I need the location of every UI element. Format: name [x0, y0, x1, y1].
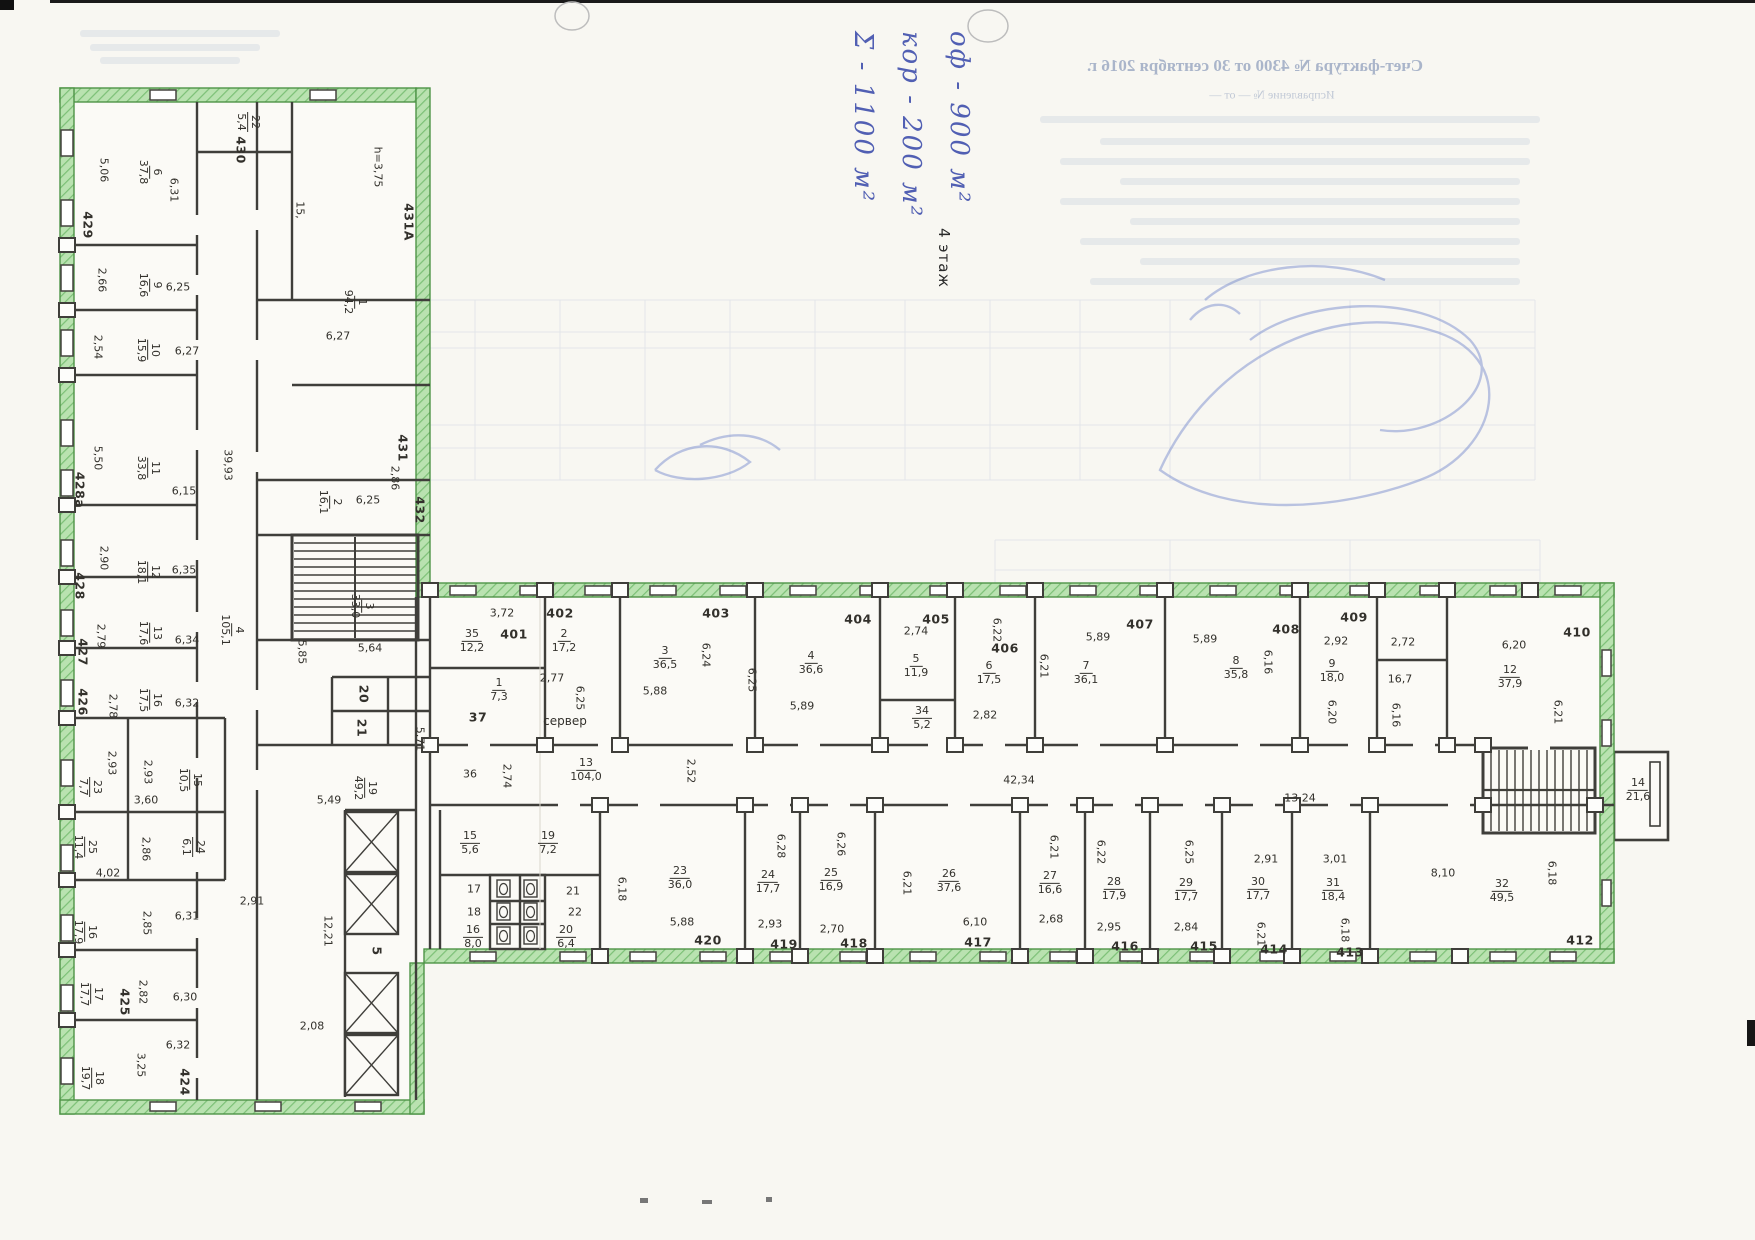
dimension-label: 6,25 [574, 686, 587, 711]
dimension-label: 6,21 [1255, 922, 1268, 947]
room-area-value: 17,7 [1246, 890, 1271, 903]
room-area-value: 5,4 [235, 113, 248, 131]
dimension-label: 6,27 [326, 330, 351, 343]
room-number-label: 429 [81, 211, 96, 239]
dimension-label: 6,16 [1262, 650, 1275, 675]
room-index-number: 9 [150, 279, 164, 292]
room-area-fraction: 4105,1 [219, 614, 245, 646]
room-index-number: 19 [538, 830, 558, 844]
room-index-number: 23 [670, 865, 690, 879]
room-index-number: 24 [758, 869, 778, 883]
room-area-fraction: 2637,6 [937, 868, 962, 894]
dimension-label: 2,91 [240, 895, 265, 908]
room-number-label: 5 [370, 946, 385, 955]
dimension-label: 3,60 [134, 794, 159, 807]
dimension-label: 6,18 [1546, 861, 1559, 886]
bleedthrough-invoice-title: Счет-фактура № 4300 от 30 сентября 2016 … [1087, 56, 1423, 76]
room-area-fraction: 1949,2 [352, 776, 378, 801]
room-number-label: 420 [694, 933, 722, 948]
dimension-label: 5,49 [317, 794, 342, 807]
room-area-fraction: 206,4 [556, 924, 576, 950]
dimension-label: 2,95 [1097, 921, 1122, 934]
room-number-label: 427 [76, 638, 91, 666]
room-area-fraction: 2417,7 [756, 869, 781, 895]
room-index-number: 2 [558, 628, 571, 642]
room-number-label: 406 [991, 641, 1019, 656]
bleedthrough-text-bar [100, 57, 240, 64]
dimension-label: 6,18 [1339, 918, 1352, 943]
dimension-label: 5,89 [790, 700, 815, 713]
room-area-fraction: 1133,8 [135, 456, 161, 481]
bleedthrough-text-bar [1080, 238, 1520, 245]
room-area-value: 19,7 [79, 1066, 92, 1091]
handwritten-line: оф - 900 м² [935, 31, 983, 331]
dimension-label: 5,06 [98, 158, 111, 183]
room-area-fraction: 617,5 [977, 660, 1002, 686]
dimension-label: 2,52 [685, 759, 698, 784]
dimension-label: 17 [467, 883, 481, 896]
dimension-label: 2,82 [973, 709, 998, 722]
room-area-fraction: 1317,6 [137, 621, 163, 646]
room-area-fraction: 168,0 [463, 924, 483, 950]
room-area-fraction: 1819,7 [79, 1066, 105, 1091]
dimension-label: 22 [568, 906, 582, 919]
room-index-number: 18 [92, 1068, 106, 1088]
dimension-label: 6,21 [1038, 654, 1051, 679]
room-area-value: 17,5 [977, 674, 1002, 687]
dimension-label: 2,74 [501, 764, 514, 789]
dimension-label: 2,78 [107, 694, 120, 719]
bleedthrough-text-bar [1060, 158, 1530, 165]
room-area-fraction: 237,7 [77, 777, 103, 797]
room-area-fraction: 2336,0 [668, 865, 693, 891]
bleedthrough-text-bar [1040, 116, 1540, 123]
room-area-value: 15,9 [135, 338, 148, 363]
dimension-label: 2,68 [1039, 913, 1064, 926]
room-number-label: 409 [1340, 610, 1368, 625]
dimension-label: 2,85 [141, 911, 154, 936]
room-area-fraction: 1617,5 [137, 688, 163, 713]
room-index-number: 16 [85, 922, 99, 942]
room-area-fraction: 17,3 [490, 677, 508, 703]
dimension-label: 6,10 [963, 916, 988, 929]
scanned-floor-plan-page: Счет-фактура № 4300 от 30 сентября 2016 … [0, 0, 1755, 1240]
room-area-value: 49,2 [352, 776, 365, 801]
room-index-number: 29 [1176, 877, 1196, 891]
room-area-fraction: 197,2 [538, 830, 558, 856]
handwritten-line: Σ - 1100 м² [839, 31, 887, 331]
room-area-value: 18,1 [135, 560, 148, 585]
room-index-number: 5 [910, 653, 923, 667]
room-area-fraction: 2917,7 [1174, 877, 1199, 903]
dimension-label: 6,20 [1326, 700, 1339, 725]
room-number-label: 432 [413, 496, 428, 524]
bleedthrough-text-bar [90, 44, 260, 51]
room-number-label: 416 [1111, 939, 1139, 954]
room-index-number: 25 [85, 837, 99, 857]
dimension-label: 6,35 [172, 564, 197, 577]
room-area-fraction: 1237,9 [1498, 664, 1523, 690]
dimension-label: 8,10 [1431, 867, 1456, 880]
room-index-number: 15 [460, 830, 480, 844]
room-area-fraction: 216,1 [317, 490, 343, 515]
room-area-fraction: 511,9 [904, 653, 929, 679]
room-index-number: 30 [1248, 876, 1268, 890]
room-area-value: 18,0 [1320, 672, 1345, 685]
dimension-label: 6,34 [175, 634, 200, 647]
room-index-number: 15 [190, 770, 204, 790]
bleedthrough-text-bar [1140, 258, 1520, 265]
dimension-label: 2,70 [820, 923, 845, 936]
dimension-label: 2,74 [904, 625, 929, 638]
room-number-label: 430 [234, 136, 249, 164]
room-area-value: 7,2 [539, 844, 557, 857]
dimension-label: 3,25 [135, 1053, 148, 1078]
room-area-fraction: 1218,1 [135, 560, 161, 585]
dimension-label: 2,93 [106, 751, 119, 776]
dimension-label: 6,25 [166, 281, 191, 294]
room-area-fraction: 345,2 [912, 705, 932, 731]
dimension-label: 2,82 [137, 980, 150, 1005]
dimension-label: 6,32 [175, 697, 200, 710]
room-index-number: 6 [150, 166, 164, 179]
room-area-value: 7,3 [490, 691, 508, 704]
room-area-fraction: 736,1 [1074, 660, 1099, 686]
room-number-label: 431 [396, 434, 411, 462]
room-index-number: 4 [805, 650, 818, 664]
dimension-label: 6,22 [991, 618, 1004, 643]
room-area-value: 16,9 [819, 881, 844, 894]
room-area-value: 18,4 [1321, 891, 1346, 904]
room-area-value: 5,6 [461, 844, 479, 857]
handwritten-line: кор - 200 м² [887, 31, 935, 331]
room-area-fraction: 217,2 [552, 628, 577, 654]
room-area-value: 37,9 [1498, 678, 1523, 691]
room-number-label: 428 [73, 572, 88, 600]
room-area-value: 35,8 [1224, 669, 1249, 682]
room-area-fraction: 194,2 [342, 290, 368, 315]
room-area-fraction: 155,6 [460, 830, 480, 856]
room-number-label: 37 [469, 710, 487, 725]
room-index-number: 16 [463, 924, 483, 938]
dimension-label: 2,08 [300, 1020, 325, 1033]
room-area-value: 49,5 [1490, 892, 1515, 905]
dimension-label: 2,86 [140, 837, 153, 862]
room-index-number: 4 [232, 624, 246, 637]
dimension-label: 6,15 [172, 485, 197, 498]
room-area-value: 36,1 [1074, 674, 1099, 687]
room-area-value: 17,2 [552, 642, 577, 655]
room-index-number: 19 [365, 778, 379, 798]
room-number-label: 410 [1563, 625, 1591, 640]
room-index-number: 9 [1326, 658, 1339, 672]
dimension-label: 21 [566, 885, 580, 898]
room-area-value: 36,5 [653, 659, 678, 672]
room-area-fraction: 637,8 [137, 160, 163, 185]
room-area-fraction: 1421,6 [1626, 777, 1651, 803]
room-area-value: 33,0 [349, 594, 362, 619]
room-index-number: 16 [150, 690, 164, 710]
room-index-number: 23 [90, 777, 104, 797]
room-area-fraction: 1015,9 [135, 338, 161, 363]
room-number-label: 426 [76, 688, 91, 716]
room-area-value: 5,2 [913, 719, 931, 732]
dimension-label: 5,89 [1193, 633, 1218, 646]
room-number-label: 419 [770, 937, 798, 952]
dimension-label: 6,24 [700, 643, 713, 668]
dimension-label: 2,93 [142, 760, 155, 785]
room-area-value: 16,6 [1038, 884, 1063, 897]
room-index-number: 6 [983, 660, 996, 674]
room-area-fraction: 436,6 [799, 650, 824, 676]
dimension-label: 2,54 [92, 335, 105, 360]
room-number-label: 417 [964, 935, 992, 950]
room-area-value: 94,2 [342, 290, 355, 315]
dimension-label: 2,92 [1324, 635, 1349, 648]
room-area-value: 17,7 [78, 982, 91, 1007]
dimension-label: 6,18 [616, 877, 629, 902]
room-area-fraction: 3249,5 [1490, 878, 1515, 904]
room-area-fraction: 835,8 [1224, 655, 1249, 681]
room-index-number: 10 [148, 340, 162, 360]
room-area-fraction: 916,6 [137, 273, 163, 298]
dimension-label: 2,77 [540, 672, 565, 685]
room-number-label: 428а [73, 472, 88, 509]
dimension-label: 18 [467, 906, 481, 919]
room-index-number: 1 [493, 677, 506, 691]
room-number-label: 401 [500, 627, 528, 642]
room-area-fraction: 13104,0 [570, 757, 602, 783]
room-area-fraction: 2516,9 [819, 867, 844, 893]
dimension-label: 2,90 [98, 546, 111, 571]
room-index-number: 17 [91, 984, 105, 1004]
bleedthrough-text-bar [1060, 198, 1520, 205]
room-area-value: 17,9 [72, 920, 85, 945]
room-index-number: 20 [556, 924, 576, 938]
room-index-number: 8 [1230, 655, 1243, 669]
room-area-value: 12,2 [460, 642, 485, 655]
room-number-label: 424 [178, 1068, 193, 1096]
dimension-label: 3,72 [490, 607, 515, 620]
dimension-label: 6,26 [835, 832, 848, 857]
room-area-value: 11,4 [72, 835, 85, 860]
room-area-value: 36,6 [799, 664, 824, 677]
room-number-label: 20 [357, 685, 372, 703]
room-area-value: 17,7 [756, 883, 781, 896]
dimension-label: 13,24 [1284, 792, 1316, 805]
dimension-label: 6,21 [1048, 835, 1061, 860]
dimension-label: 2,91 [1254, 853, 1279, 866]
dimension-label: 5,85 [296, 640, 309, 665]
dimension-label: 12,21 [322, 915, 335, 947]
dimension-label: 5,64 [358, 642, 383, 655]
dimension-label: 5,88 [643, 685, 668, 698]
room-index-number: 27 [1040, 870, 1060, 884]
room-area-fraction: 246,1 [180, 837, 206, 857]
room-index-number: 1 [355, 296, 369, 309]
dimension-label: 42,34 [1003, 774, 1035, 787]
note-label: сервер [543, 714, 587, 728]
room-area-value: 21,6 [1626, 791, 1651, 804]
room-number-label: 415 [1190, 939, 1218, 954]
room-area-fraction: 1717,7 [78, 982, 104, 1007]
room-area-value: 6,4 [557, 938, 575, 951]
room-index-number: 31 [1323, 877, 1343, 891]
dimension-label: h=3,75 [372, 147, 385, 188]
room-index-number: 12 [148, 562, 162, 582]
dimension-label: 4,02 [96, 867, 121, 880]
dimension-label: 2,66 [96, 268, 109, 293]
room-number-label: 418 [840, 936, 868, 951]
dimension-label: 6,25 [746, 668, 759, 693]
dimension-label: 6,31 [175, 910, 200, 923]
room-area-fraction: 918,0 [1320, 658, 1345, 684]
room-index-number: 11 [148, 458, 162, 478]
room-number-label: 404 [844, 612, 872, 627]
dimension-label: 2,86 [389, 466, 402, 491]
dimension-label: 6,27 [175, 345, 200, 358]
handwritten-area-note: оф - 900 м² кор - 200 м² Σ - 1100 м² [837, 31, 983, 331]
bleedthrough-text-bar [1100, 138, 1530, 145]
room-area-fraction: 2817,9 [1102, 876, 1127, 902]
room-index-number: 25 [821, 867, 841, 881]
room-area-fraction: 3512,2 [460, 628, 485, 654]
dimension-label: 6,20 [1502, 639, 1527, 652]
dimension-label: 6,25 [356, 494, 381, 507]
room-number-label: 408 [1272, 622, 1300, 637]
dimension-label: 6,21 [1552, 700, 1565, 725]
room-number-label: 425 [118, 988, 133, 1016]
dimension-label: 16,7 [1388, 673, 1413, 686]
room-area-value: 37,8 [137, 160, 150, 185]
dimension-label: 2,72 [1391, 636, 1416, 649]
room-area-value: 17,9 [1102, 890, 1127, 903]
room-area-value: 16,1 [317, 490, 330, 515]
dimension-label: 5,71 [414, 727, 427, 752]
dimension-label: 5,89 [1086, 631, 1111, 644]
dimension-label: 6,25 [1183, 840, 1196, 865]
dimension-label: 39,93 [222, 449, 235, 481]
room-area-value: 6,1 [180, 838, 193, 856]
room-number-label: 431А [402, 203, 417, 241]
room-number-label: 407 [1126, 617, 1154, 632]
room-area-value: 17,7 [1174, 891, 1199, 904]
room-area-value: 11,9 [904, 667, 929, 680]
pen-scribbles [655, 266, 1489, 505]
room-area-value: 10,5 [177, 768, 190, 793]
room-index-number: 35 [462, 628, 482, 642]
room-area-value: 16,6 [137, 273, 150, 298]
dimension-label: 3,01 [1323, 853, 1348, 866]
dimension-label: 2,93 [758, 918, 783, 931]
room-index-number: 13 [150, 623, 164, 643]
room-index-number: 3 [362, 600, 376, 613]
room-area-fraction: 1510,5 [177, 768, 203, 793]
bleedthrough-invoice-subtitle: Исправление № — от — [1209, 88, 1334, 103]
bleedthrough-text-bar [80, 30, 280, 37]
dimension-label: 36 [463, 768, 477, 781]
room-number-label: 412 [1566, 933, 1594, 948]
room-index-number: 34 [912, 705, 932, 719]
bleedthrough-text-bar [1120, 178, 1520, 185]
room-index-number: 12 [1500, 664, 1520, 678]
dimension-label: 6,22 [1095, 840, 1108, 865]
bleedthrough-text-bar [1130, 218, 1520, 225]
room-area-value: 33,8 [135, 456, 148, 481]
room-area-value: 104,0 [570, 771, 602, 784]
dimension-label: 6,28 [775, 834, 788, 859]
room-index-number: 14 [1628, 777, 1648, 791]
room-area-value: 105,1 [219, 614, 232, 646]
room-area-fraction: 2716,6 [1038, 870, 1063, 896]
room-index-number: 3 [659, 645, 672, 659]
dimension-label: 5,88 [670, 916, 695, 929]
room-area-fraction: 333,0 [349, 594, 375, 619]
dimension-label: 6,30 [173, 991, 198, 1004]
room-index-number: 2 [330, 496, 344, 509]
dimension-label: 15, [294, 201, 307, 219]
room-area-fraction: 3118,4 [1321, 877, 1346, 903]
dimension-label: 2,84 [1174, 921, 1199, 934]
dimension-label: 2,79 [95, 624, 108, 649]
dimension-label: 5,50 [92, 446, 105, 471]
room-area-value: 8,0 [464, 938, 482, 951]
room-area-fraction: 225,4 [235, 112, 261, 132]
room-area-fraction: 336,5 [653, 645, 678, 671]
room-area-value: 36,0 [668, 879, 693, 892]
room-area-fraction: 3017,7 [1246, 876, 1271, 902]
room-area-value: 7,7 [77, 778, 90, 796]
bleedthrough-text-bar [1090, 278, 1520, 285]
dimension-label: 6,31 [168, 178, 181, 203]
room-index-number: 26 [939, 868, 959, 882]
room-area-value: 17,6 [137, 621, 150, 646]
dimension-label: 6,21 [901, 871, 914, 896]
room-area-value: 37,6 [937, 882, 962, 895]
room-index-number: 24 [193, 837, 207, 857]
dimension-label: 6,32 [166, 1039, 191, 1052]
room-index-number: 28 [1104, 876, 1124, 890]
room-index-number: 13 [576, 757, 596, 771]
room-index-number: 32 [1492, 878, 1512, 892]
dimension-label: 6,16 [1390, 703, 1403, 728]
room-area-fraction: 1617,9 [72, 920, 98, 945]
room-number-label: 403 [702, 606, 730, 621]
room-area-value: 17,5 [137, 688, 150, 713]
room-number-label: 413 [1336, 945, 1364, 960]
room-number-label: 402 [546, 606, 574, 621]
room-number-label: 21 [355, 719, 370, 737]
room-area-fraction: 2511,4 [72, 835, 98, 860]
room-index-number: 22 [248, 112, 262, 132]
room-index-number: 7 [1080, 660, 1093, 674]
